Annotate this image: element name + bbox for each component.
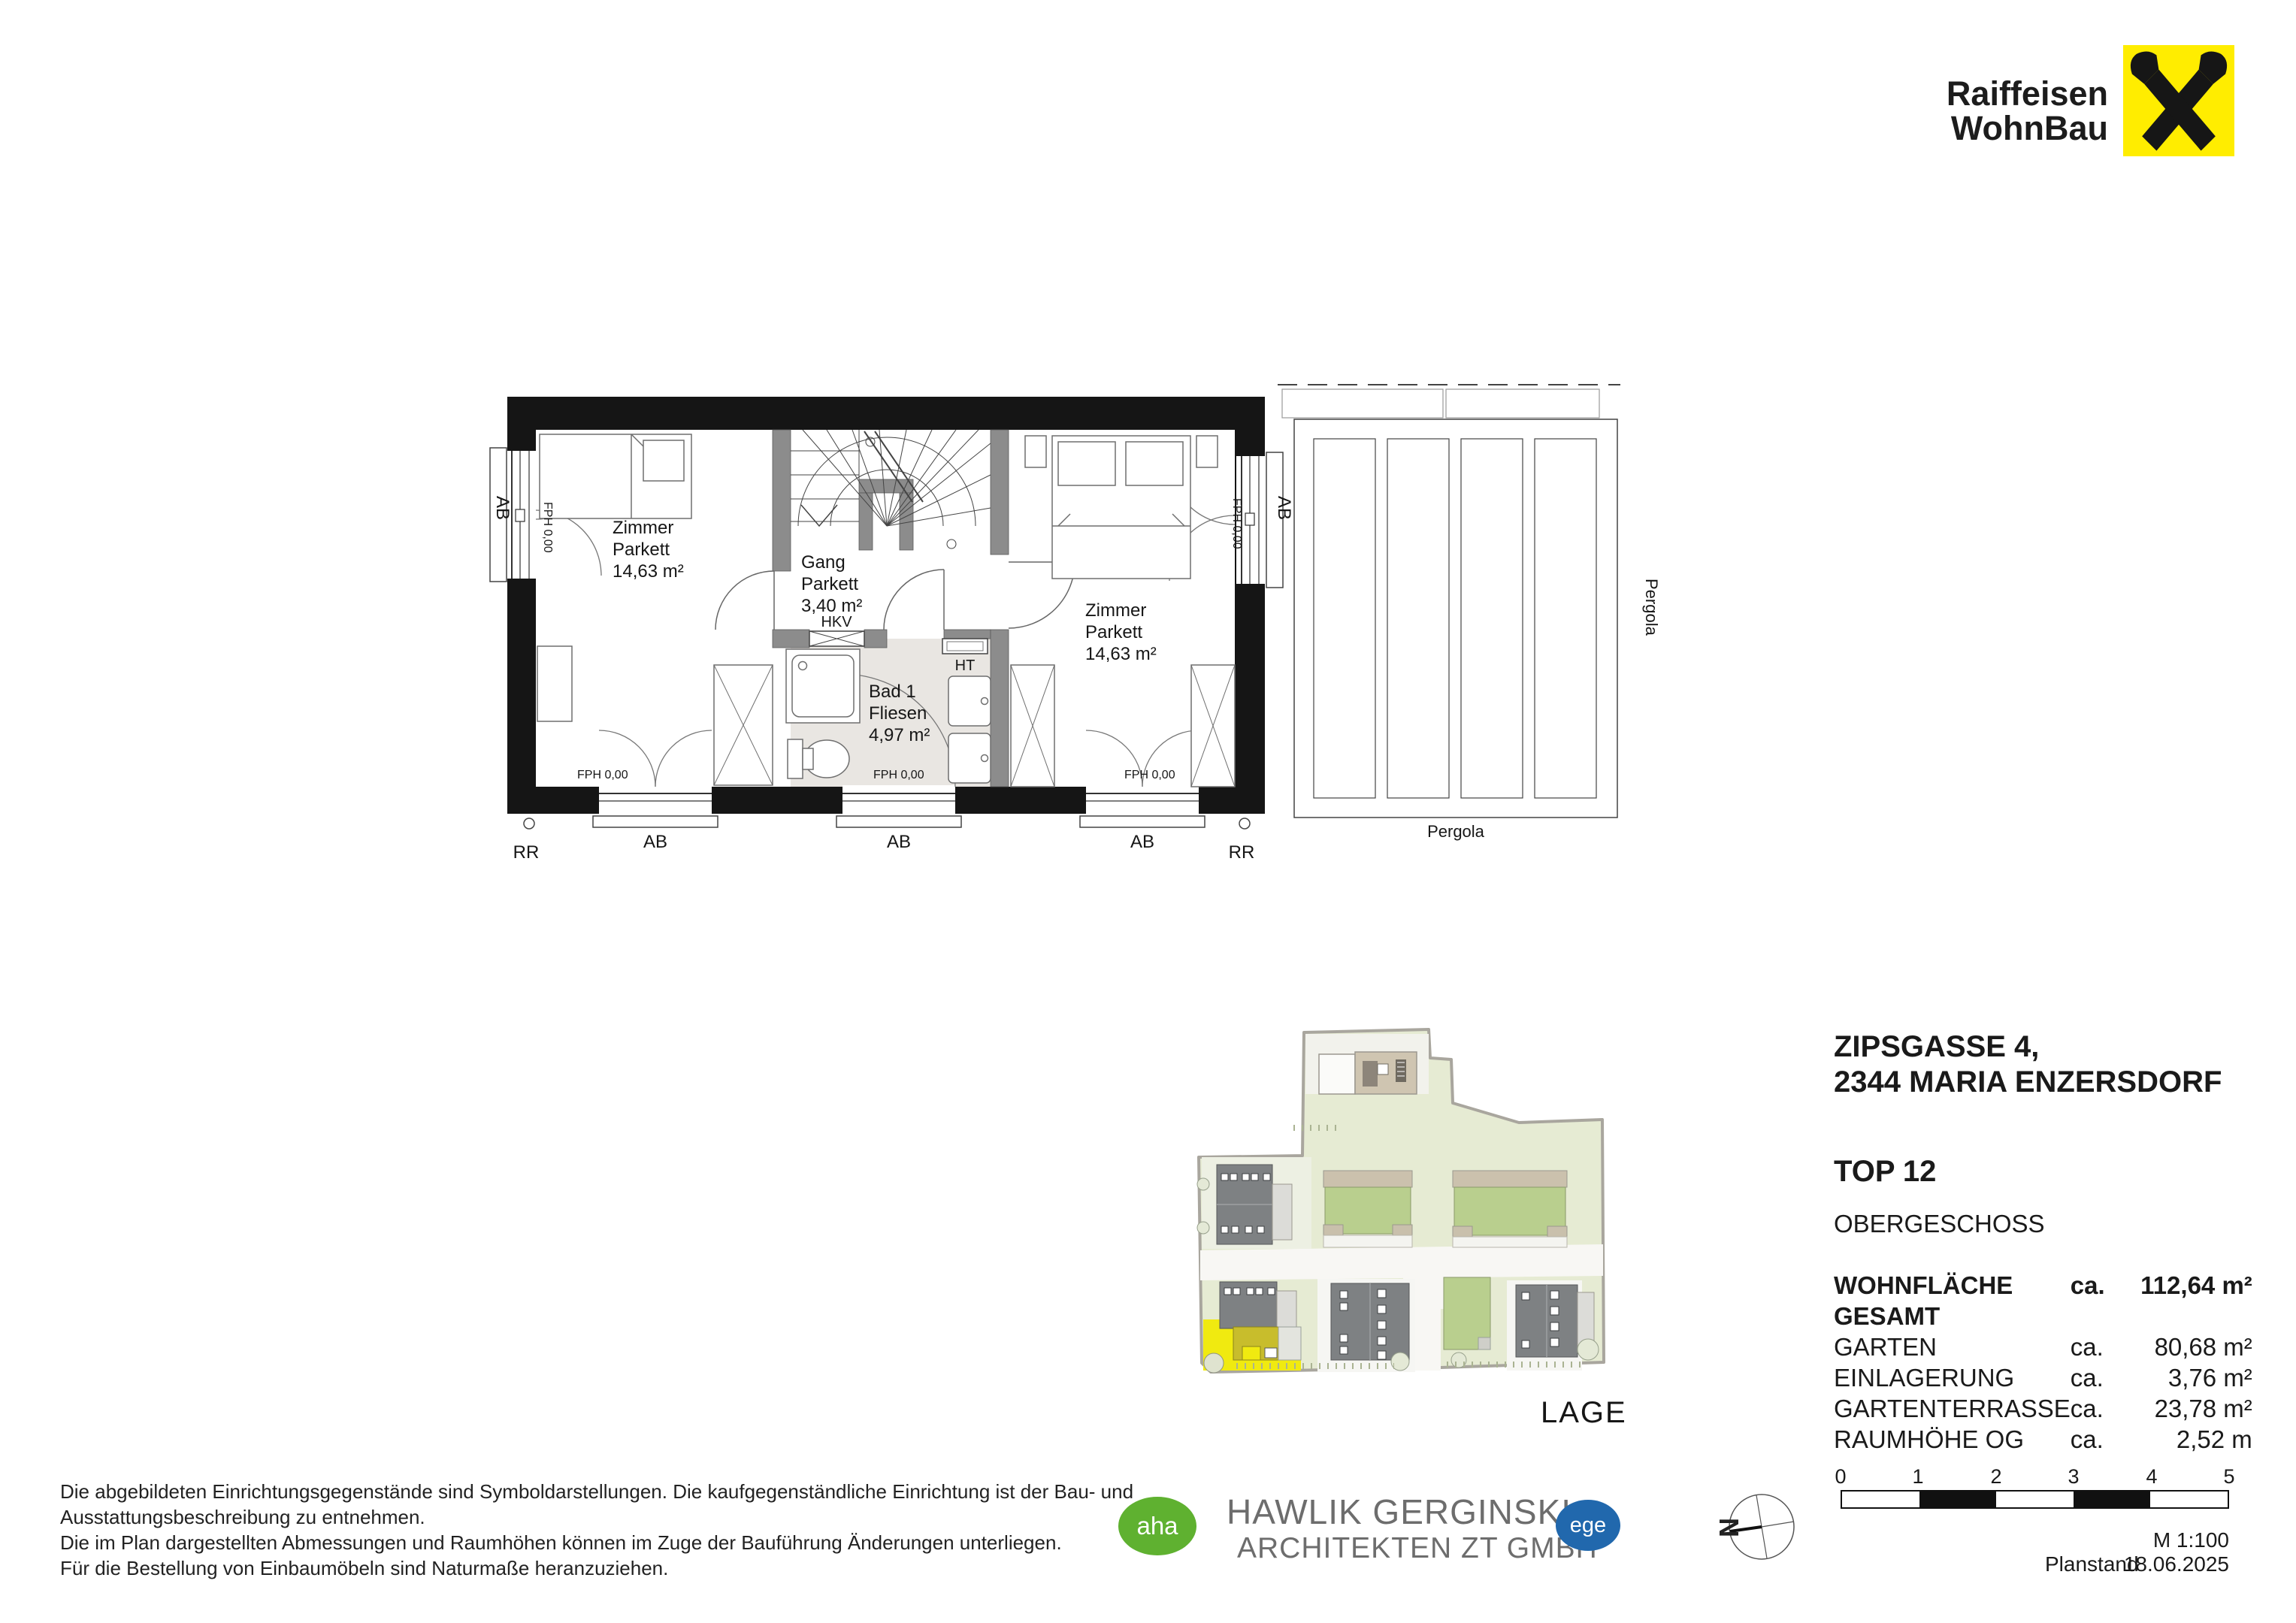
pergola-label: Pergola (1427, 822, 1485, 841)
metric-value: 80,68 m² (2119, 1331, 2252, 1362)
architect-name-line2: ARCHITEKTEN ZT GMBH (1237, 1532, 1598, 1565)
architect-name: HAWLIK GERGINSKI ARCHITEKTEN ZT GMBH (1227, 1492, 1598, 1565)
top-building (1319, 1052, 1417, 1094)
fph-label: FPH 0,00 (577, 769, 628, 781)
brand-line2: WohnBau (1947, 111, 2108, 146)
wardrobe-left-room (714, 665, 773, 785)
scale-ratio: M 1:100 (2153, 1528, 2229, 1552)
doors (715, 562, 1075, 630)
metric-label: EINLAGERUNG (1834, 1362, 2071, 1393)
architect-name-line1: HAWLIK GERGINSKI (1227, 1492, 1598, 1532)
ht-box (942, 639, 988, 654)
door-bath (884, 570, 944, 630)
room-finish: Parkett (613, 539, 670, 560)
ab-label: AB (492, 496, 513, 520)
disclaimer: Die abgebildeten Einrichtungsgegenstände… (60, 1479, 1133, 1581)
door-room-left (715, 571, 774, 630)
metric-label: RAUMHÖHE OG (1834, 1424, 2071, 1455)
wardrobe-right-room-1 (1011, 665, 1054, 787)
room-finish: Parkett (1085, 622, 1142, 642)
floor-level: OBERGESCHOSS (1834, 1210, 2243, 1238)
scale-tick: 5 (2223, 1465, 2234, 1489)
scale-tick: 4 (2146, 1465, 2157, 1489)
floorplan: Zimmer Parkett 14,63 m² Gang Parkett 3,4… (473, 361, 1676, 872)
room-name: Bad 1 (869, 682, 916, 702)
toilet (788, 739, 849, 778)
metric-label: GARTEN (1834, 1331, 2071, 1362)
room-name: Zimmer (1085, 600, 1146, 621)
sink-2 (948, 733, 991, 783)
room-area: 14,63 m² (1085, 644, 1157, 664)
metric-value: 23,78 m² (2119, 1393, 2252, 1424)
scale-tick: 3 (2068, 1465, 2079, 1489)
room-area: 3,40 m² (801, 596, 862, 616)
garden-center (1444, 1277, 1490, 1349)
address-line2: 2344 MARIA ENZERSDORF (1834, 1065, 2243, 1100)
room-name: Zimmer (613, 518, 673, 538)
metric-label: GARTENTERRASSE (1834, 1393, 2071, 1424)
fph-label: FPH 0,00 (1230, 498, 1243, 549)
room-area: 14,63 m² (613, 561, 684, 582)
brand-wordmark: Raiffeisen WohnBau (1947, 77, 2108, 146)
disclaimer-line: Die abgebildeten Einrichtungsgegenstände… (60, 1479, 1133, 1504)
room-label-zimmer-left: Zimmer Parkett 14,63 m² (613, 518, 684, 582)
tree (1204, 1353, 1224, 1373)
metric-approx: ca. (2071, 1362, 2119, 1393)
fph-label: FPH 0,00 (1124, 769, 1175, 781)
site-plan-caption: LAGE (1541, 1396, 1627, 1430)
fph-label: FPH 0,00 (541, 502, 554, 553)
brand-line1: Raiffeisen (1947, 77, 2108, 111)
ab-label: AB (1130, 832, 1154, 852)
fph-label: FPH 0,00 (873, 769, 924, 781)
rr-label: RR (1229, 842, 1255, 863)
house-upper-left (1202, 1157, 1311, 1249)
hkv-label: HKV (821, 614, 852, 630)
room-label-gang: Gang Parkett 3,40 m² (801, 552, 862, 616)
bed-double (1025, 436, 1218, 579)
ab-label: AB (1274, 496, 1294, 520)
room-label-zimmer-right: Zimmer Parkett 14,63 m² (1085, 600, 1157, 664)
unit-info: ZIPSGASSE 4, 2344 MARIA ENZERSDORF TOP 1… (1834, 1029, 2243, 1455)
metric-value: 2,52 m (2119, 1424, 2252, 1455)
disclaimer-line: Für die Bestellung von Einbaumöbeln sind… (60, 1555, 1133, 1581)
metric-value: 112,64 m² (2119, 1270, 2252, 1331)
metric-approx: ca. (2071, 1424, 2119, 1455)
ege-badge-icon: ege (1556, 1500, 1620, 1551)
shower (786, 649, 860, 723)
scale-bar-graphic (1841, 1490, 2229, 1509)
scale-tick: 2 (1990, 1465, 2001, 1489)
sink-1 (948, 676, 991, 726)
desk (537, 646, 572, 721)
metric-value: 3,76 m² (2119, 1362, 2252, 1393)
plan-sheet: Raiffeisen WohnBau (0, 0, 2296, 1623)
disclaimer-line: Die im Plan dargestellten Abmessungen un… (60, 1530, 1133, 1555)
ab-label: AB (643, 832, 667, 852)
pergola-label: Pergola (1642, 579, 1661, 636)
room-area: 4,97 m² (869, 725, 930, 745)
disclaimer-line: Ausstattungsbeschreibung zu entnehmen. (60, 1504, 1133, 1530)
north-arrow-icon: N (1697, 1488, 1802, 1566)
rr-label: RR (513, 842, 540, 863)
metric-approx: ca. (2071, 1270, 2119, 1331)
wardrobe-right-room-2 (1191, 665, 1235, 787)
site-plan (1191, 1028, 1627, 1381)
room-finish: Parkett (801, 574, 858, 594)
bed-single (540, 434, 691, 518)
room-finish: Fliesen (869, 703, 927, 724)
room-name: Gang (801, 552, 845, 573)
metric-approx: ca. (2071, 1331, 2119, 1362)
ab-label: AB (887, 832, 911, 852)
scale-tick: 0 (1835, 1465, 1846, 1489)
unit-number: TOP 12 (1834, 1155, 2243, 1189)
planstand-date: 18.06.2025 (2124, 1552, 2229, 1576)
north-label: N (1714, 1518, 1744, 1537)
area-table: WOHNFLÄCHE GESAMT ca. 112,64 m² GARTEN c… (1834, 1270, 2243, 1455)
building-upper-middle (1323, 1171, 1412, 1247)
scale-bar: 0 1 2 3 4 5 M 1:100 Planstand 18.06.2025 (1841, 1465, 2229, 1578)
metric-label: WOHNFLÄCHE GESAMT (1834, 1270, 2071, 1331)
hkv-box (809, 631, 864, 646)
metric-approx: ca. (2071, 1393, 2119, 1424)
raiffeisen-gable-cross-icon (2123, 45, 2234, 156)
scale-tick: 1 (1912, 1465, 1923, 1489)
address-line1: ZIPSGASSE 4, (1834, 1029, 2243, 1065)
ht-label: HT (955, 657, 976, 674)
pergola (1278, 385, 1620, 818)
aha-badge-icon: aha (1118, 1497, 1196, 1555)
